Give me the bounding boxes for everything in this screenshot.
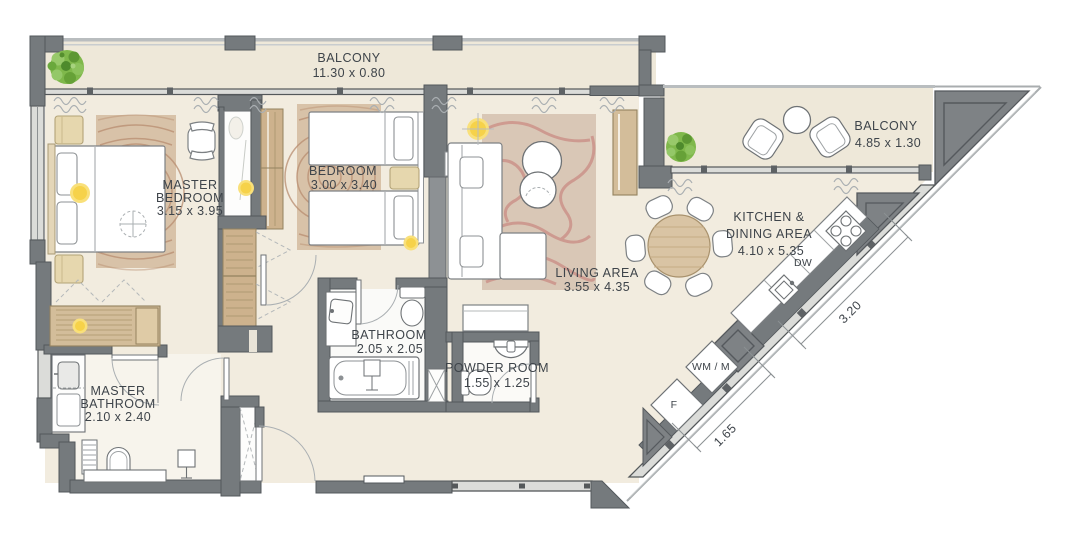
- svg-text:4.85 x 1.30: 4.85 x 1.30: [855, 136, 921, 150]
- svg-text:F: F: [671, 399, 678, 411]
- svg-text:DINING AREA: DINING AREA: [726, 227, 812, 241]
- svg-text:11.30 x 0.80: 11.30 x 0.80: [313, 66, 386, 80]
- svg-text:BALCONY: BALCONY: [317, 51, 380, 65]
- svg-text:KITCHEN &: KITCHEN &: [733, 210, 804, 224]
- svg-text:BEDROOM: BEDROOM: [156, 191, 224, 205]
- svg-text:LIVING AREA: LIVING AREA: [555, 266, 638, 280]
- svg-text:2.10 x 2.40: 2.10 x 2.40: [85, 410, 151, 424]
- svg-text:3.55 x 4.35: 3.55 x 4.35: [564, 280, 630, 294]
- svg-text:4.10 x 5.35: 4.10 x 5.35: [738, 244, 804, 258]
- svg-text:BATHROOM: BATHROOM: [80, 397, 155, 411]
- svg-text:MASTER: MASTER: [162, 178, 217, 192]
- svg-text:POWDER ROOM: POWDER ROOM: [445, 361, 549, 375]
- svg-text:2.05 x 2.05: 2.05 x 2.05: [357, 342, 423, 356]
- svg-text:BEDROOM: BEDROOM: [309, 164, 377, 178]
- svg-text:3.15 x 3.95: 3.15 x 3.95: [157, 204, 223, 218]
- svg-text:BATHROOM: BATHROOM: [351, 328, 426, 342]
- svg-text:BALCONY: BALCONY: [854, 119, 917, 133]
- svg-text:1.55 x 1.25: 1.55 x 1.25: [464, 376, 530, 390]
- svg-text:3.00 x 3.40: 3.00 x 3.40: [311, 178, 377, 192]
- svg-text:DW: DW: [794, 257, 812, 269]
- svg-text:MASTER: MASTER: [90, 384, 145, 398]
- svg-text:WM / M: WM / M: [692, 361, 730, 373]
